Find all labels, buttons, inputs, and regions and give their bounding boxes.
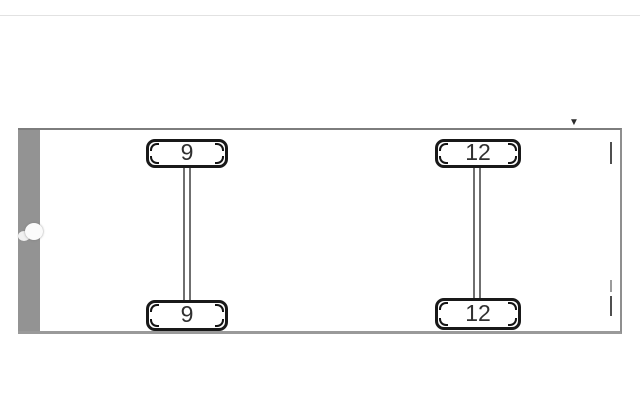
tire-corner-mark	[215, 304, 224, 312]
tire-corner-mark	[215, 319, 224, 327]
wheel-load-value: 9	[181, 141, 194, 164]
tire-corner-mark	[150, 304, 159, 312]
tire-corner-mark	[508, 143, 517, 151]
wheel-axle2-bottom[interactable]: 12	[435, 298, 521, 330]
wheel-axle1-top[interactable]: 9	[146, 139, 228, 168]
wheel-load-value: 12	[465, 141, 491, 164]
axle-shaft-2	[473, 167, 481, 301]
right-edge-tick-bottom	[610, 296, 612, 316]
tire-corner-mark	[508, 302, 517, 310]
vehicle-body-panel	[18, 128, 622, 334]
wheel-axle2-top[interactable]: 12	[435, 139, 521, 168]
right-edge-tick-top	[610, 142, 612, 164]
kingpin-knob	[25, 223, 43, 240]
tire-corner-mark	[215, 143, 224, 151]
axle-shaft-1	[183, 167, 191, 303]
tire-corner-mark	[508, 156, 517, 164]
tire-corner-mark	[150, 319, 159, 327]
top-divider	[0, 15, 640, 16]
tire-corner-mark	[439, 143, 448, 151]
tire-corner-mark	[439, 318, 448, 326]
tire-corner-mark	[439, 302, 448, 310]
canvas: ▼ 9 9 12 12	[0, 0, 640, 405]
tire-corner-mark	[508, 318, 517, 326]
tire-corner-mark	[150, 143, 159, 151]
right-edge-tick-bottom-light	[610, 280, 612, 292]
wheel-axle1-bottom[interactable]: 9	[146, 300, 228, 331]
kingpin-icon[interactable]	[17, 220, 45, 248]
wheel-load-value: 9	[181, 303, 194, 326]
tire-corner-mark	[439, 156, 448, 164]
tire-corner-mark	[215, 156, 224, 164]
wheel-load-value: 12	[465, 302, 491, 325]
tire-corner-mark	[150, 156, 159, 164]
